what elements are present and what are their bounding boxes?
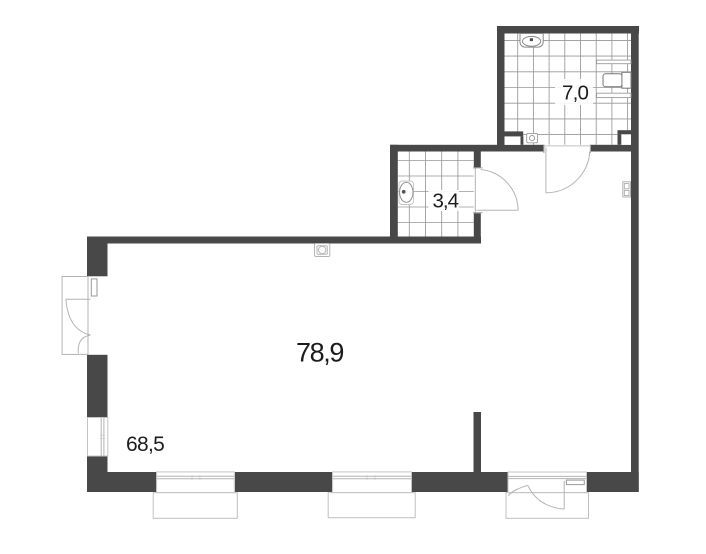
svg-text:68,5: 68,5: [126, 433, 164, 456]
svg-text:7,0: 7,0: [562, 81, 588, 104]
svg-text:3,4: 3,4: [433, 190, 459, 213]
svg-text:78,9: 78,9: [296, 338, 343, 368]
